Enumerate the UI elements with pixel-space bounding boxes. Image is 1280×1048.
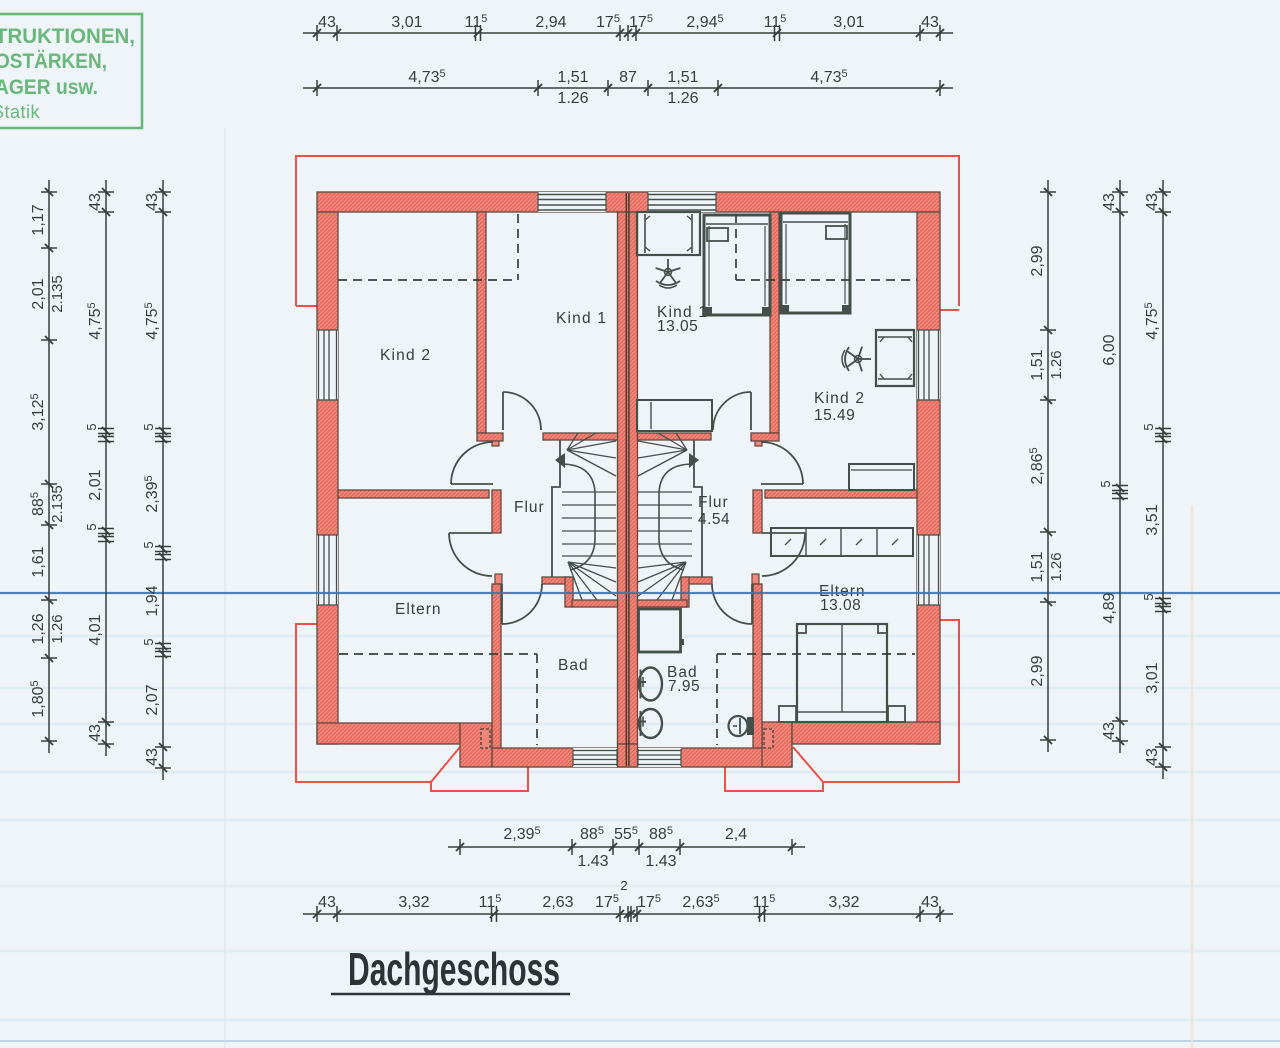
svg-text:1,26: 1,26 (30, 613, 47, 644)
svg-text:5: 5 (1098, 480, 1113, 487)
svg-text:1.26: 1.26 (49, 614, 66, 643)
svg-text:Kind 2: Kind 2 (380, 347, 431, 364)
svg-text:2,99: 2,99 (1029, 245, 1046, 276)
svg-text:3,01: 3,01 (391, 14, 422, 31)
svg-text:2,94: 2,94 (535, 14, 566, 31)
svg-text:87: 87 (619, 69, 637, 86)
svg-text:5: 5 (141, 638, 156, 645)
svg-text:2,4: 2,4 (725, 826, 747, 843)
svg-text:1.26: 1.26 (1048, 350, 1065, 379)
svg-text:AGER usw.: AGER usw. (0, 76, 98, 99)
svg-text:Dachgeschoss: Dachgeschoss (348, 943, 560, 995)
svg-text:13.08: 13.08 (820, 597, 861, 614)
svg-text:1.26: 1.26 (1048, 552, 1065, 581)
svg-text:5: 5 (1141, 423, 1156, 430)
svg-text:1,94: 1,94 (144, 585, 161, 616)
svg-text:OSTÄRKEN,: OSTÄRKEN, (0, 50, 107, 73)
svg-text:2,01: 2,01 (87, 469, 104, 500)
svg-text:3,01: 3,01 (833, 14, 864, 31)
svg-text:1.26: 1.26 (667, 90, 698, 107)
svg-text:Kind 1: Kind 1 (556, 310, 607, 327)
svg-text:4,89: 4,89 (1101, 592, 1118, 623)
svg-text:43: 43 (1101, 722, 1118, 740)
svg-text:1,51: 1,51 (667, 69, 698, 86)
svg-text:1,51: 1,51 (1029, 551, 1046, 582)
svg-text:2,01: 2,01 (30, 278, 47, 309)
svg-text:2,99: 2,99 (1029, 655, 1046, 686)
svg-text:43: 43 (921, 894, 939, 911)
svg-text:Flur: Flur (514, 499, 545, 516)
svg-text:43: 43 (1101, 193, 1118, 211)
svg-text:4,01: 4,01 (87, 614, 104, 645)
svg-text:Eltern: Eltern (395, 601, 442, 618)
svg-text:3,32: 3,32 (828, 894, 859, 911)
svg-text:7.95: 7.95 (668, 678, 700, 695)
svg-text:2: 2 (620, 878, 627, 893)
svg-text:TRUKTIONEN,: TRUKTIONEN, (0, 25, 135, 48)
svg-text:6,00: 6,00 (1101, 334, 1118, 365)
svg-text:2,07: 2,07 (144, 684, 161, 715)
svg-text:1,61: 1,61 (30, 546, 47, 577)
svg-text:1.43: 1.43 (577, 853, 608, 870)
svg-text:5: 5 (84, 423, 99, 430)
svg-text:3,01: 3,01 (1144, 662, 1161, 693)
svg-text:Bad: Bad (558, 657, 589, 674)
svg-text:Flur: Flur (698, 494, 729, 511)
svg-text:5: 5 (141, 423, 156, 430)
svg-text:43: 43 (1144, 193, 1161, 211)
svg-text:1,51: 1,51 (557, 69, 588, 86)
svg-text:Kind 2: Kind 2 (814, 390, 865, 407)
svg-text:43: 43 (318, 14, 336, 31)
svg-text:3,32: 3,32 (398, 894, 429, 911)
svg-text:43: 43 (87, 724, 104, 742)
svg-text:1.26: 1.26 (557, 90, 588, 107)
svg-text:43: 43 (87, 193, 104, 211)
svg-text:2.135: 2.135 (49, 485, 66, 523)
svg-text:1,17: 1,17 (30, 204, 47, 235)
svg-text:5: 5 (84, 523, 99, 530)
svg-text:1.43: 1.43 (645, 853, 676, 870)
svg-text:13.05: 13.05 (657, 318, 698, 335)
svg-text:15.49: 15.49 (814, 407, 855, 424)
svg-text:43: 43 (318, 894, 336, 911)
svg-text:Statik: Statik (0, 102, 41, 122)
svg-text:4.54: 4.54 (698, 511, 730, 528)
svg-text:5: 5 (141, 541, 156, 548)
svg-text:1,51: 1,51 (1029, 349, 1046, 380)
svg-text:43: 43 (144, 748, 161, 766)
svg-text:2,63: 2,63 (542, 894, 573, 911)
svg-text:43: 43 (921, 14, 939, 31)
svg-text:5: 5 (1141, 593, 1156, 600)
svg-text:2.135: 2.135 (49, 275, 66, 313)
svg-text:43: 43 (144, 193, 161, 211)
svg-text:43: 43 (1144, 748, 1161, 766)
svg-text:3,51: 3,51 (1144, 504, 1161, 535)
